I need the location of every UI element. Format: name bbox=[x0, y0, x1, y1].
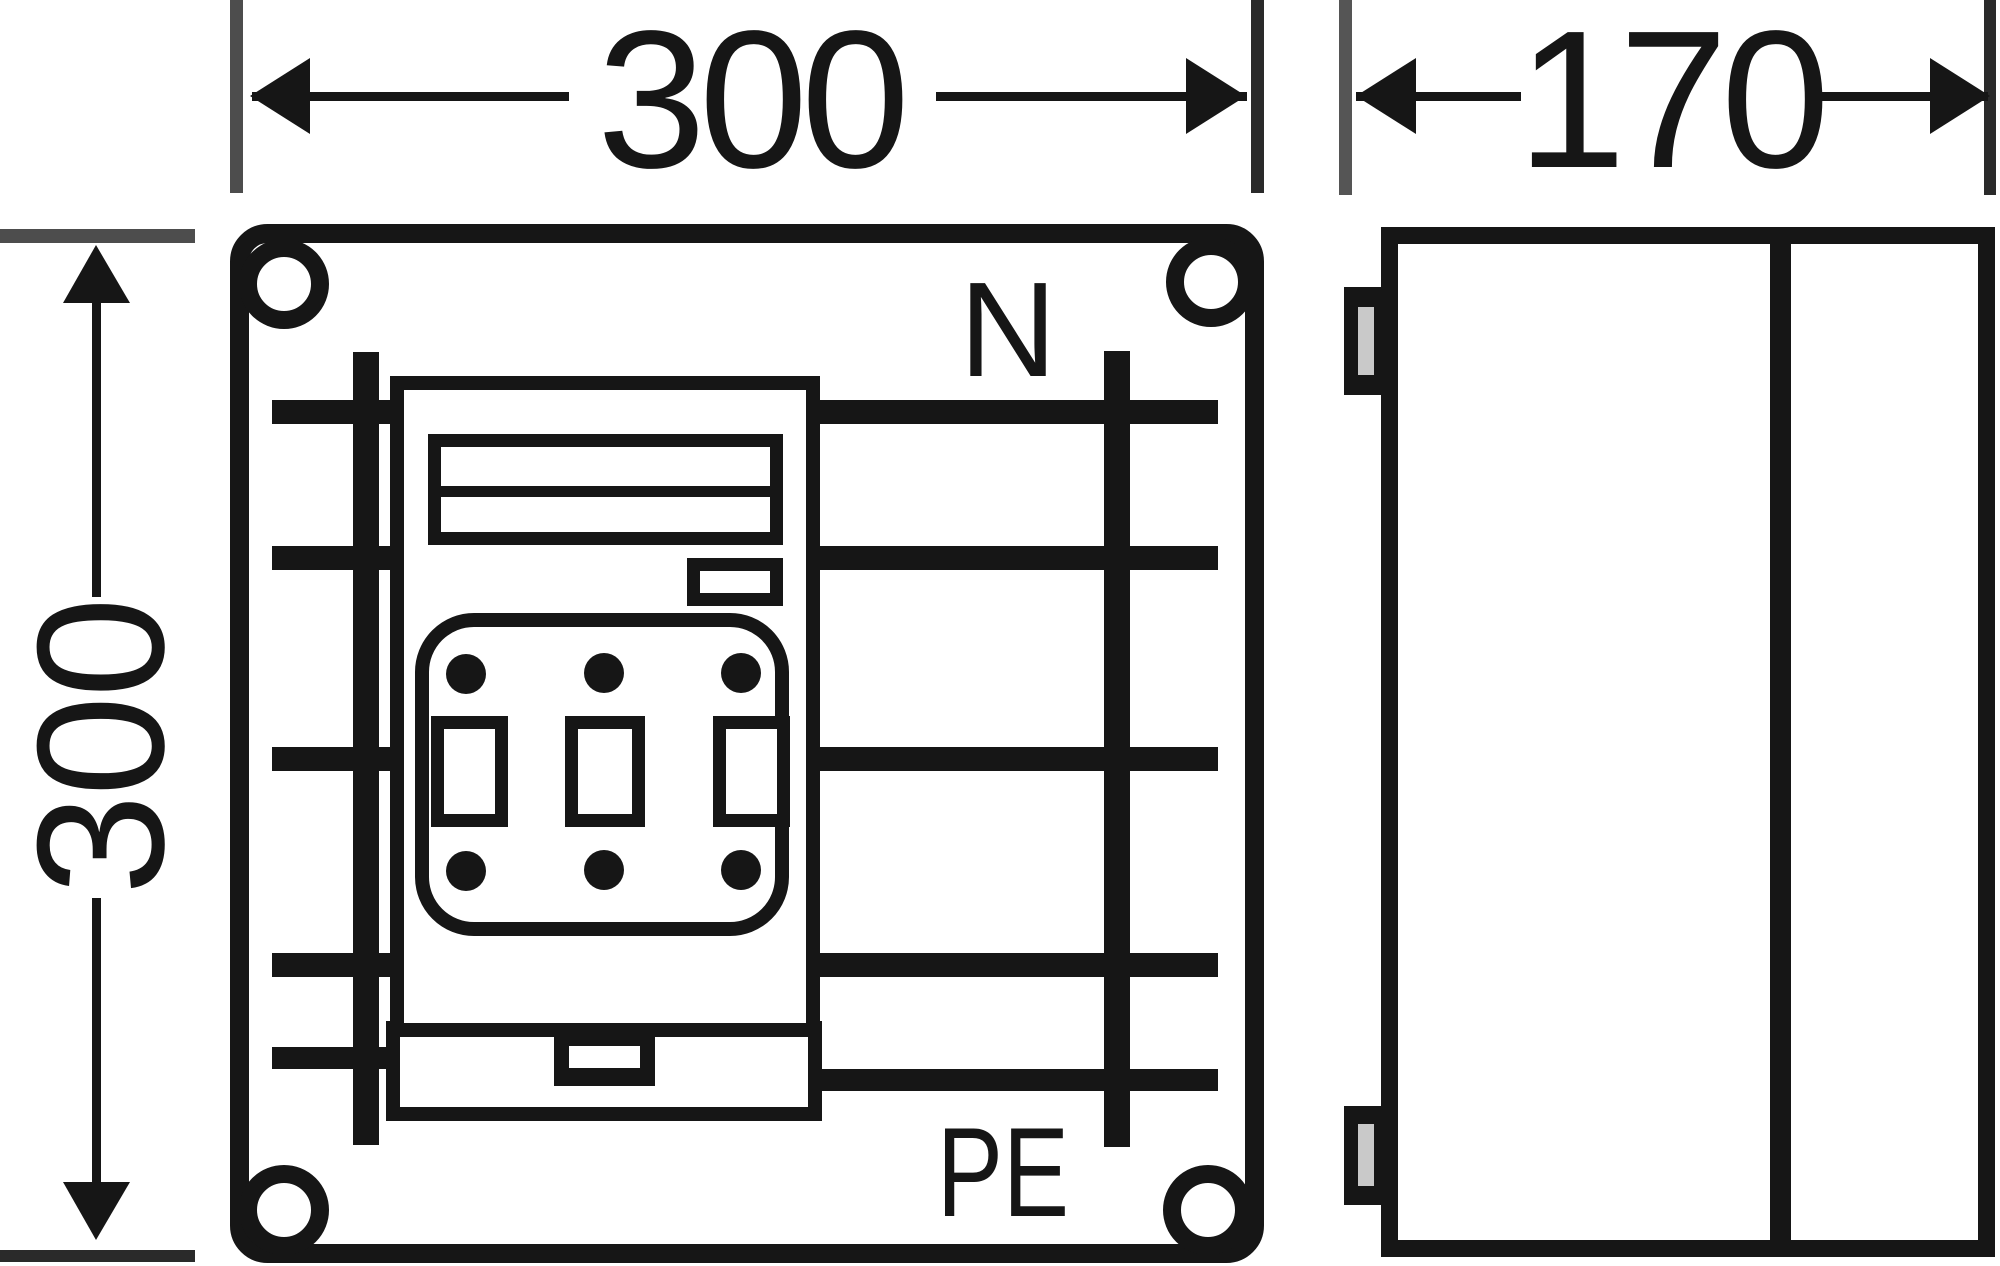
svg-text:PE: PE bbox=[937, 1102, 1069, 1244]
svg-text:300: 300 bbox=[597, 0, 903, 209]
svg-text:300: 300 bbox=[0, 599, 202, 895]
svg-text:170: 170 bbox=[1517, 0, 1823, 209]
svg-text:N: N bbox=[959, 254, 1057, 405]
